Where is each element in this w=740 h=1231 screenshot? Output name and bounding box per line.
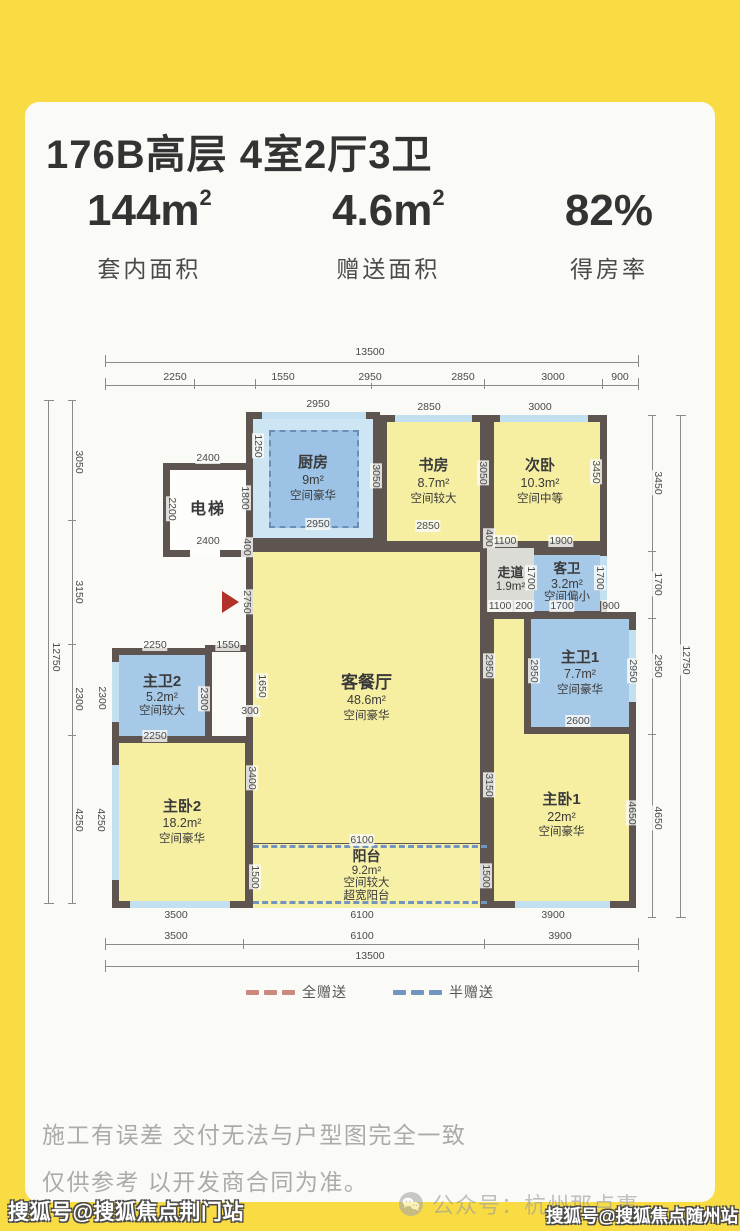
window-strip xyxy=(262,412,366,419)
window-strip xyxy=(112,765,119,880)
room-grade: 空间豪华 xyxy=(290,489,336,503)
room-bedroom-2: 次卧10.3m²空间中等 xyxy=(487,415,607,548)
dimension-label: 1250 xyxy=(252,433,264,458)
dimension-line xyxy=(676,415,686,416)
stat-value: 4.6m2 xyxy=(332,186,445,236)
dimension-line xyxy=(68,520,76,521)
dimension-label: 4650 xyxy=(626,800,638,825)
dimension-label: 2300 xyxy=(96,685,108,710)
dimension-label: 1500 xyxy=(480,863,492,888)
room-name: 客卫 xyxy=(554,561,581,577)
half-gift-dash-line xyxy=(253,901,487,904)
dimension-label: 2950 xyxy=(627,658,639,683)
room-grade: 空间豪华 xyxy=(539,825,585,839)
dimension-label: 1700 xyxy=(594,565,606,590)
window-strip xyxy=(112,662,119,722)
dimension-label: 1700 xyxy=(652,571,664,596)
entry-arrow-icon xyxy=(222,591,239,613)
room-name: 厨房 xyxy=(298,454,328,473)
room-name: 主卧1 xyxy=(542,791,580,810)
room-area: 22m² xyxy=(547,810,575,826)
room-area: 5.2m² xyxy=(146,690,178,704)
dimension-label: 200 xyxy=(514,600,534,612)
poster: 176B高层 4室2厅3卫 144m2 套内面积 4.6m2 赠送面积 82% … xyxy=(0,0,740,1231)
room-area: 9m² xyxy=(302,473,324,489)
dimension-label: 6100 xyxy=(349,909,374,921)
room-grade: 空间较大 xyxy=(411,492,457,506)
dimension-line xyxy=(638,938,639,950)
dimension-label: 2950 xyxy=(305,398,330,410)
dimension-line xyxy=(105,362,638,363)
floor-plan: 客餐厅48.6m²空间豪华主卧122m²空间豪华主卫17.7m²空间豪华次卧10… xyxy=(0,0,740,1231)
room-master-bed-2: 主卧218.2m²空间豪华 xyxy=(112,736,252,908)
legend-item-half-gift: 半赠送 xyxy=(393,982,494,1002)
room-grade: 空间豪华 xyxy=(159,832,205,846)
dimension-label: 12750 xyxy=(680,644,692,675)
stats-row: 144m2 套内面积 4.6m2 赠送面积 82% 得房率 xyxy=(25,186,715,284)
dimension-line xyxy=(255,379,256,389)
watermark-bottom-left: 搜狐号@搜狐焦点荆门站 xyxy=(8,1196,244,1226)
window-strip xyxy=(395,415,472,422)
dimension-label: 1500 xyxy=(249,864,261,889)
room-name: 书房 xyxy=(418,457,448,476)
room-name: 客餐厅 xyxy=(341,672,392,693)
dimension-label: 4650 xyxy=(652,805,664,830)
room-grade: 空间豪华 xyxy=(557,683,603,697)
room-living: 客餐厅48.6m²空间豪华 xyxy=(246,545,487,850)
dimension-label: 3400 xyxy=(246,765,258,790)
room-area: 48.6m² xyxy=(347,693,386,709)
room-grade: 空间较大 xyxy=(344,877,390,890)
stat-gift-area: 4.6m2 赠送面积 xyxy=(332,186,445,284)
dimension-label: 2950 xyxy=(528,658,540,683)
dimension-label: 900 xyxy=(601,600,621,612)
room-grade: 空间较大 xyxy=(139,705,185,718)
dimension-line xyxy=(105,355,106,367)
room-area: 1.9m² xyxy=(496,581,525,594)
dimension-label: 2950 xyxy=(483,653,495,678)
room-name: 走道 xyxy=(497,566,523,581)
dimension-label: 12750 xyxy=(50,641,62,672)
dimension-line xyxy=(105,378,106,390)
room-area: 3.2m² xyxy=(551,577,583,591)
dimension-label: 2200 xyxy=(166,496,178,521)
room-master-bath-2: 主卫25.2m²空间较大 xyxy=(112,648,212,743)
dimension-line xyxy=(638,378,639,390)
dimension-label: 3050 xyxy=(73,449,85,474)
dimension-label: 1700 xyxy=(549,600,574,612)
dimension-label: 2300 xyxy=(73,686,85,711)
room-area: 8.7m² xyxy=(418,476,450,492)
room-name: 阳台 xyxy=(353,849,381,864)
watermark-bottom-right: 搜狐号@搜狐焦点随州站 xyxy=(546,1203,738,1228)
room-name: 主卫1 xyxy=(561,649,599,668)
dimension-label: 2850 xyxy=(450,371,475,383)
dimension-line xyxy=(638,355,639,367)
dimension-line xyxy=(648,618,656,619)
dimension-line xyxy=(648,415,656,416)
disclaimer-line-1: 施工有误差 交付无法与户型图完全一致 xyxy=(42,1112,466,1159)
page-title: 176B高层 4室2厅3卫 xyxy=(46,122,432,180)
dimension-line xyxy=(48,400,49,903)
dimension-line xyxy=(105,944,638,945)
dimension-line xyxy=(44,903,54,904)
dimension-label: 1650 xyxy=(256,673,268,698)
dimension-label: 3150 xyxy=(483,772,495,797)
dimension-line xyxy=(484,379,485,389)
dimension-label: 2950 xyxy=(357,371,382,383)
stat-label: 得房率 xyxy=(565,250,653,284)
stat-label: 套内面积 xyxy=(87,250,212,284)
dimension-line xyxy=(68,903,76,904)
dimension-label: 2400 xyxy=(195,452,220,464)
dimension-label: 1550 xyxy=(270,371,295,383)
dimension-line xyxy=(105,966,638,967)
dimension-label: 1800 xyxy=(239,485,251,510)
dimension-label: 2850 xyxy=(415,520,440,532)
room-name: 次卧 xyxy=(525,457,555,476)
stat-value: 144m2 xyxy=(87,186,212,236)
room-area: 7.7m² xyxy=(564,667,596,683)
elevator-door xyxy=(190,550,220,557)
legend-label: 全赠送 xyxy=(302,982,347,1002)
dimension-line xyxy=(648,917,656,918)
dimension-label: 1550 xyxy=(215,639,240,651)
room-grade: 空间中等 xyxy=(517,492,563,506)
dimension-label: 1900 xyxy=(548,535,573,547)
dimension-label: 3500 xyxy=(163,909,188,921)
dimension-label: 2600 xyxy=(565,715,590,727)
dimension-line xyxy=(602,379,603,389)
legend-label: 半赠送 xyxy=(449,982,494,1002)
wechat-icon xyxy=(398,1191,424,1217)
dimension-line xyxy=(68,735,76,736)
dimension-label: 13500 xyxy=(354,950,385,962)
dimension-line xyxy=(44,400,54,401)
legend-item-full-gift: 全赠送 xyxy=(246,982,347,1002)
dimension-label: 900 xyxy=(610,371,630,383)
dimension-label: 6100 xyxy=(349,930,374,942)
dimension-label: 6100 xyxy=(349,834,374,846)
dimension-label: 2950 xyxy=(305,518,330,530)
room-grade: 空间豪华 xyxy=(344,709,390,723)
room-name: 主卧2 xyxy=(163,798,201,817)
half-gift-dashes xyxy=(393,990,442,995)
dimension-label: 2850 xyxy=(416,401,441,413)
dimension-line xyxy=(243,939,244,949)
dimension-line xyxy=(676,917,686,918)
dimension-line xyxy=(68,400,76,401)
room-balcony: 阳台9.2m²空间较大超宽阳台 xyxy=(246,844,487,908)
dimension-label: 2400 xyxy=(195,535,220,547)
stat-label: 赠送面积 xyxy=(332,250,445,284)
dimension-label: 2750 xyxy=(241,589,253,614)
dimension-label: 4250 xyxy=(95,807,107,832)
dimension-line xyxy=(648,551,656,552)
dimension-label: 300 xyxy=(240,705,260,717)
room-area: 10.3m² xyxy=(521,476,560,492)
dimension-label: 3150 xyxy=(73,579,85,604)
full-gift-dashes xyxy=(246,990,295,995)
dimension-label: 3000 xyxy=(527,401,552,413)
window-strip xyxy=(515,901,610,908)
dimension-line xyxy=(484,939,485,949)
dimension-label: 3450 xyxy=(652,470,664,495)
dimension-line xyxy=(648,734,656,735)
dimension-label: 3050 xyxy=(370,463,382,488)
dimension-label: 1100 xyxy=(493,535,518,547)
dimension-line xyxy=(105,960,106,972)
window-strip xyxy=(130,901,230,908)
dimension-label: 3500 xyxy=(163,930,188,942)
dimension-label: 2250 xyxy=(142,639,167,651)
window-strip xyxy=(500,415,588,422)
dimension-label: 2950 xyxy=(652,653,664,678)
gift-legend: 全赠送 半赠送 xyxy=(0,982,740,1002)
dimension-label: 13500 xyxy=(354,346,385,358)
dimension-line xyxy=(638,960,639,972)
dimension-label: 1100 xyxy=(488,600,513,612)
room-area: 9.2m² xyxy=(352,865,381,878)
dimension-label: 4250 xyxy=(73,807,85,832)
dimension-label: 3900 xyxy=(540,909,565,921)
room-name: 电梯 xyxy=(190,500,226,520)
dimension-label: 2250 xyxy=(162,371,187,383)
dimension-line xyxy=(105,938,106,950)
dimension-label: 2250 xyxy=(142,730,167,742)
dimension-label: 400 xyxy=(241,537,253,557)
dimension-label: 2300 xyxy=(198,686,210,711)
dimension-line xyxy=(68,644,76,645)
dimension-label: 1700 xyxy=(525,565,537,590)
stat-interior-area: 144m2 套内面积 xyxy=(87,186,212,284)
dimension-label: 3450 xyxy=(590,459,602,484)
stat-efficiency: 82% 得房率 xyxy=(565,186,653,284)
dimension-label: 3900 xyxy=(547,930,572,942)
stat-value: 82% xyxy=(565,186,653,236)
room-name: 主卫2 xyxy=(143,673,181,690)
dimension-line xyxy=(194,379,195,389)
dimension-label: 3000 xyxy=(540,371,565,383)
room-area: 18.2m² xyxy=(163,816,202,832)
dimension-label: 3050 xyxy=(477,460,489,485)
